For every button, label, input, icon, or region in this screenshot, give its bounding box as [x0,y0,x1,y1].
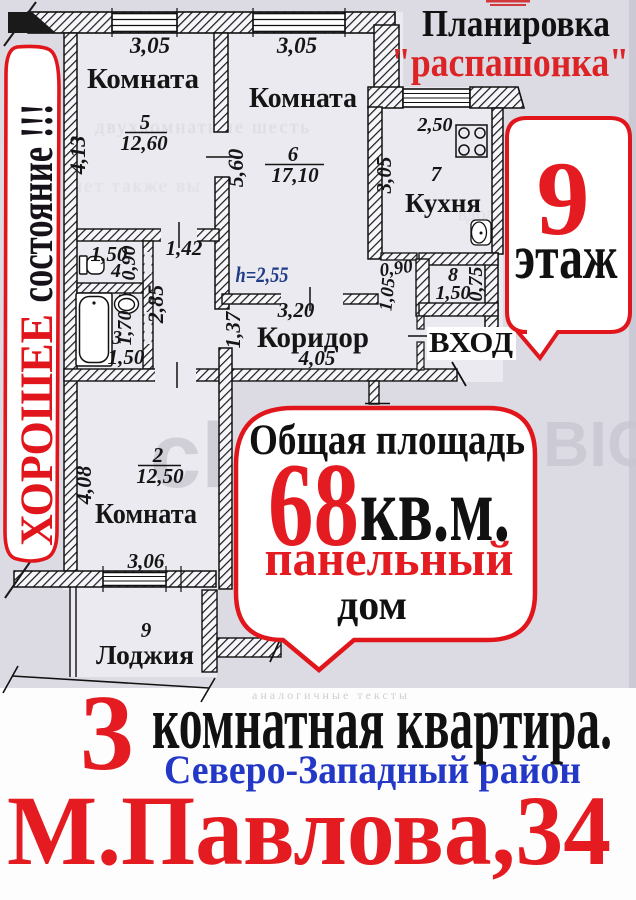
svg-text:3,06: 3,06 [127,549,165,573]
svg-text:12,50: 12,50 [136,464,184,488]
svg-text:"распашонка": "распашонка" [391,39,629,85]
svg-text:2,85: 2,85 [143,285,168,325]
svg-text:1,37: 1,37 [221,310,245,348]
svg-text:панельный: панельный [265,530,514,586]
svg-text:3,05: 3,05 [129,33,170,58]
svg-text:9: 9 [141,618,152,642]
svg-text:состояние !!!: состояние !!! [11,104,63,303]
svg-text:0,75: 0,75 [465,267,487,302]
svg-text:ХОРОШЕЕ: ХОРОШЕЕ [11,314,63,546]
svg-text:Комната: Комната [249,82,357,114]
svg-text:0,90: 0,90 [118,246,140,281]
svg-text:17,10: 17,10 [271,163,319,187]
svg-text:ВІС: ВІС [543,408,636,480]
svg-text:3,20: 3,20 [277,298,315,322]
svg-text:М.Павлова,34: М.Павлова,34 [7,775,611,886]
svg-text:дом: дом [337,583,407,629]
svg-text:7: 7 [431,162,443,186]
svg-text:Кухня: Кухня [405,188,481,218]
svg-text:4,13: 4,13 [65,136,90,176]
svg-text:2,50: 2,50 [417,114,453,136]
svg-text:нет также вы: нет также вы [72,176,202,197]
svg-text:12,60: 12,60 [120,131,168,155]
svg-text:1,42: 1,42 [166,236,203,260]
svg-text:Комната: Комната [95,499,197,530]
svg-text:h=2,55: h=2,55 [236,262,289,287]
svg-text:4,08: 4,08 [71,466,96,506]
svg-text:Лоджия: Лоджия [96,640,194,670]
svg-text:3,05: 3,05 [276,33,317,58]
svg-text:4,05: 4,05 [298,346,336,370]
svg-text:3,05: 3,05 [372,157,396,195]
svg-text:1,50: 1,50 [108,345,145,369]
svg-text:Комната: Комната [87,63,199,95]
svg-text:5,60: 5,60 [223,149,248,188]
svg-text:этаж: этаж [515,224,618,292]
svg-text:1,05: 1,05 [375,276,399,312]
svg-text:ВХОД: ВХОД [429,328,513,359]
